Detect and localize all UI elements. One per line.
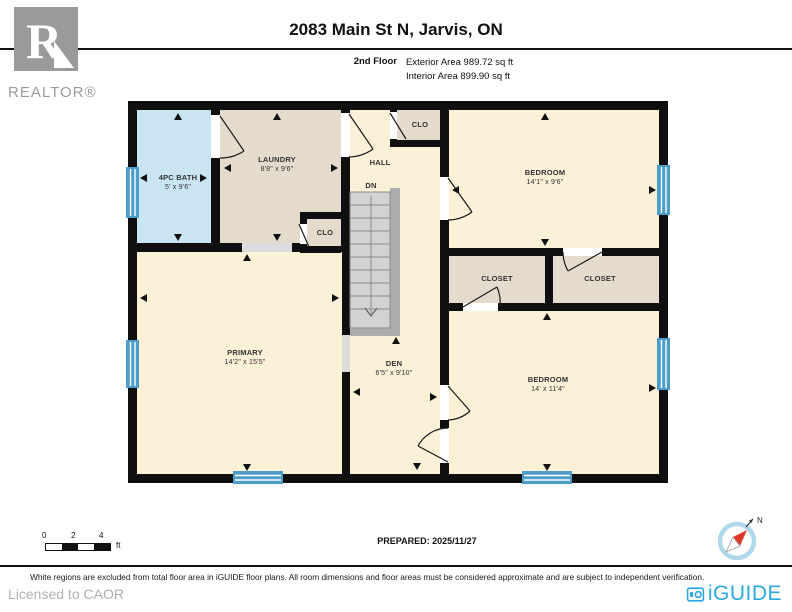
room-label-laundry: LAUNDRY 8'8" x 9'6" [258,155,296,175]
window-icon [657,338,670,390]
iguide-logo: iGUIDE [686,582,782,606]
window-icon [126,340,139,388]
iguide-wordmark: iGUIDE [708,582,782,606]
page-title: 2083 Main St N, Jarvis, ON [0,20,792,40]
room-label-clo-mid: CLO [317,228,333,238]
room-label-bedroom-bottom: BEDROOM 14' x 11'4" [528,375,569,395]
stairs-dn-label: DN [365,181,376,191]
compass-icon: N [710,512,766,564]
interior-area: Interior Area 899.90 sq ft [406,70,513,84]
realtor-logo: R [14,7,78,71]
room-label-clo-top: CLO [412,120,428,130]
iguide-camera-icon [686,585,705,604]
disclaimer-text: White regions are excluded from total fl… [30,572,770,582]
scale-bar: 0 2 4 ft [42,531,132,555]
footer-divider [0,565,792,567]
room-label-hall: HALL [370,158,391,168]
room-label-bedroom-top: BEDROOM 14'1" x 9'6" [525,168,566,188]
staircase [350,188,400,336]
room-label-den: DEN 6'5" x 9'10" [376,359,413,379]
room-label-primary: PRIMARY 14'2" x 15'5" [225,348,266,368]
scale-bar-segments [45,543,111,551]
room-label-closet-left: CLOSET [481,274,513,284]
floor-plan-svg [0,0,792,612]
floor-label: 2nd Floor [354,56,397,67]
compass-north-label: N [757,516,763,525]
area-block: Exterior Area 989.72 sq ft Interior Area… [406,56,513,84]
window-icon [126,167,139,218]
exterior-area: Exterior Area 989.72 sq ft [406,56,513,70]
room-label-bath: 4PC BATH 5' x 9'6" [159,173,198,193]
realtor-wordmark: REALTOR® [8,84,97,101]
window-icon [522,471,572,484]
room-label-closet-right: CLOSET [584,274,616,284]
prepared-date: PREPARED: 2025/11/27 [377,536,476,546]
licensed-to-text: Licensed to CAOR [8,586,124,602]
title-divider [0,48,792,50]
scale-unit: ft [116,541,120,550]
window-icon [657,165,670,215]
window-icon [233,471,283,484]
